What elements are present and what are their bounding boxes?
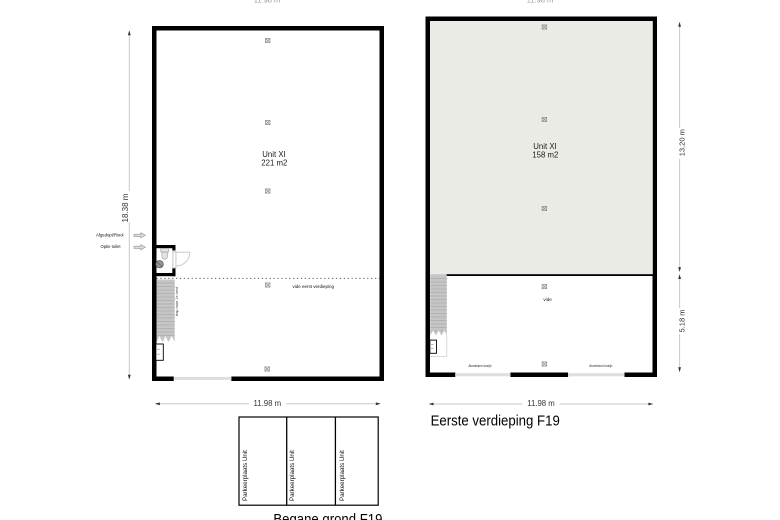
svg-text:11.98 m: 11.98 m (527, 399, 555, 408)
svg-text:18.38 m: 18.38 m (121, 194, 130, 223)
svg-text:Eerste verdieping F19: Eerste verdieping F19 (431, 414, 560, 430)
svg-text:221 m2: 221 m2 (261, 158, 287, 167)
svg-text:Begane grond F19: Begane grond F19 (273, 512, 382, 520)
svg-text:13.20 m: 13.20 m (678, 129, 687, 156)
svg-text:158 m2: 158 m2 (532, 150, 558, 159)
svg-text:Parkeerplaats Unit: Parkeerplaats Unit (242, 450, 249, 501)
svg-text:Afgedopt/Riool: Afgedopt/Riool (96, 233, 124, 238)
svg-text:trap naar 1e verd.: trap naar 1e verd. (175, 286, 179, 316)
svg-text:Aluminium kozijn: Aluminium kozijn (589, 363, 612, 368)
svg-text:5.18 m: 5.18 m (678, 310, 687, 333)
svg-text:Optie toilet: Optie toilet (100, 244, 121, 249)
svg-text:11.98 m: 11.98 m (254, 0, 281, 5)
svg-text:vide: vide (543, 297, 552, 302)
svg-text:vide eerst verdieping: vide eerst verdieping (293, 284, 335, 289)
svg-text:Parkeerplaats Unit: Parkeerplaats Unit (339, 450, 346, 501)
svg-text:11.98 m: 11.98 m (254, 399, 282, 408)
svg-text:Aluminium kozijn: Aluminium kozijn (469, 363, 492, 368)
svg-text:11.98 m: 11.98 m (527, 0, 554, 5)
svg-text:Parkeerplaats Unit: Parkeerplaats Unit (289, 450, 296, 501)
